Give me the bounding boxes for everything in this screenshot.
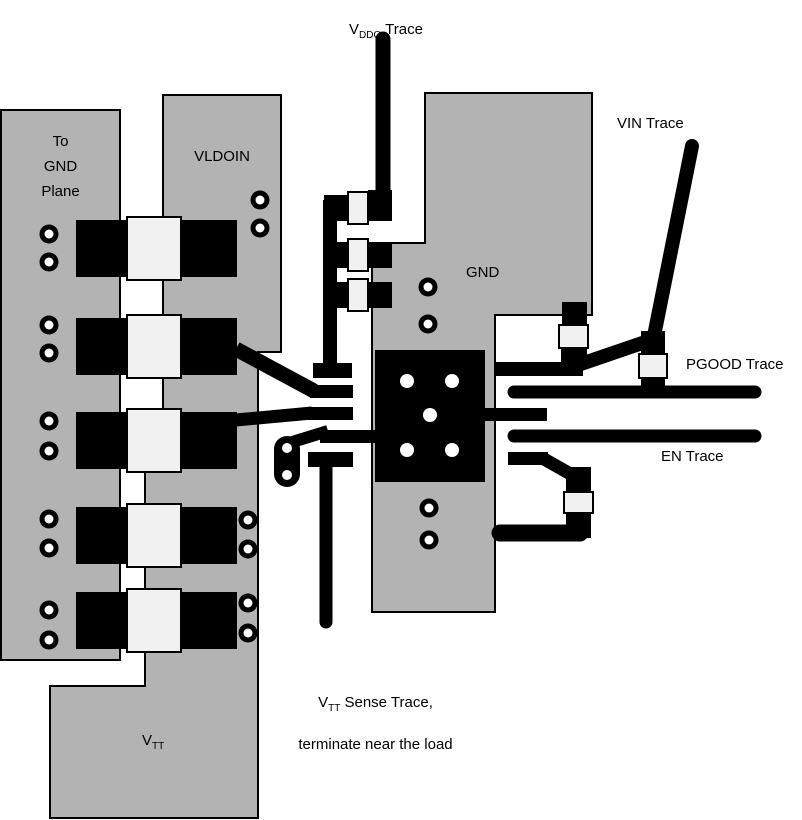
bridge-capacitor-row: [76, 504, 237, 567]
vin-trace: [654, 146, 692, 336]
gnd-label: GND: [466, 264, 499, 282]
pcb-layout-diagram: VDDQ Trace To GND Plane VLDOIN GND VIN T…: [0, 0, 802, 820]
bridge-capacitor-row: [76, 589, 237, 652]
en-trace-label: EN Trace: [661, 448, 724, 466]
vin-trace-label: VIN Trace: [617, 115, 684, 133]
bridge-capacitor-row: [76, 217, 237, 280]
pgood-trace-label: PGOOD Trace: [686, 356, 784, 374]
vldoin-label: VLDOIN: [165, 148, 279, 166]
vtt-sense-label: VTT Sense Trace, terminate near the load: [258, 650, 493, 776]
bridge-capacitor-row: [76, 315, 237, 378]
bridge-capacitor-row: [76, 409, 237, 472]
vtt-plane-label: VTT: [142, 714, 164, 750]
ic-thermal-pad: [375, 350, 485, 482]
vddq-trace-label: VDDQ Trace: [349, 3, 423, 39]
right-capacitor-2: [639, 331, 667, 398]
right-capacitor-1: [559, 302, 588, 368]
to-gnd-plane-label: To GND Plane: [8, 129, 113, 204]
right-capacitor-3: [500, 467, 593, 538]
